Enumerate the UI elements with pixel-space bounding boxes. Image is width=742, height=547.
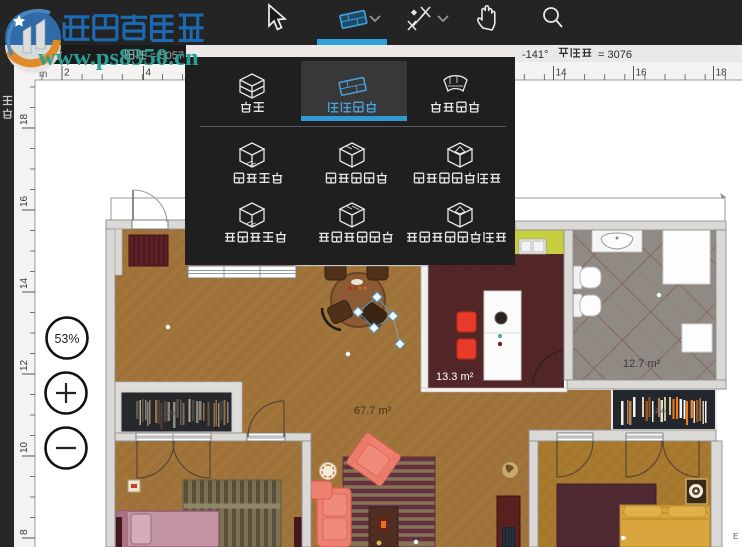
svg-text:10: 10 [19,441,30,453]
svg-text:67.7 m²: 67.7 m² [354,405,392,417]
svg-text:12.4x: 12.4x [652,409,667,415]
svg-text:16: 16 [19,195,30,207]
svg-text:14: 14 [556,68,568,79]
svg-text:-141°: -141° [522,49,548,61]
svg-text:12: 12 [19,359,30,371]
svg-text:= 3076: = 3076 [598,49,632,61]
svg-text:14: 14 [19,277,30,289]
svg-text:www.ps8350.cn: www.ps8350.cn [38,44,199,71]
svg-text:13.3 m²: 13.3 m² [436,371,474,383]
svg-text:E: E [733,532,738,541]
svg-text:12.7 m²: 12.7 m² [623,358,661,370]
svg-text:53%: 53% [54,332,79,346]
svg-text:12.4x: 12.4x [160,410,177,417]
svg-text:18: 18 [19,113,30,125]
svg-text:8: 8 [19,529,30,535]
